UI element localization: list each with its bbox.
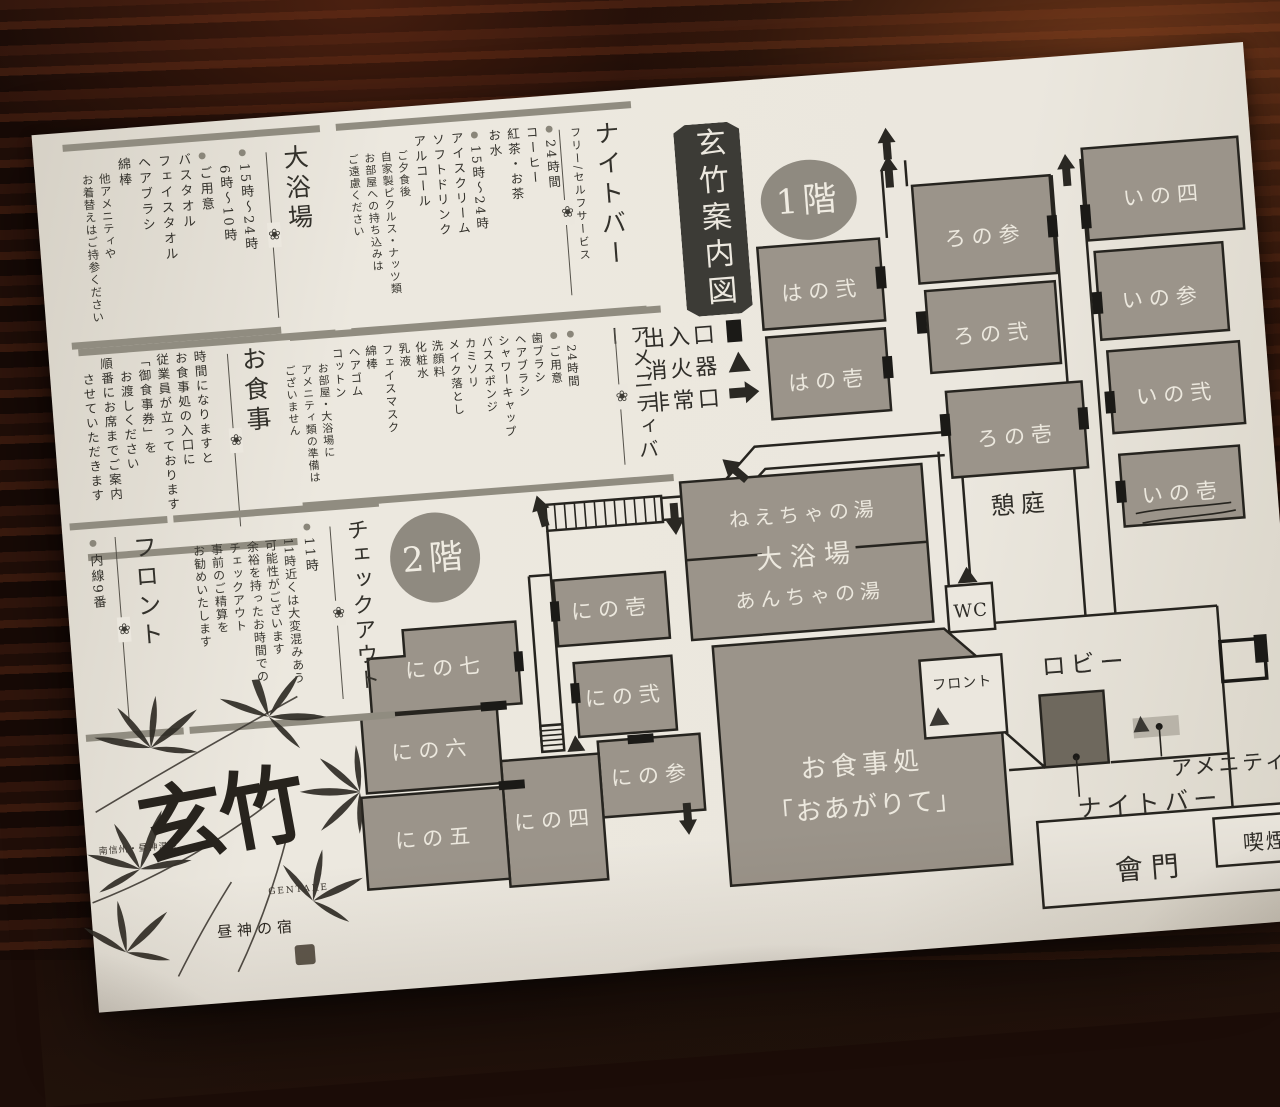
room-i4: いの四 [1082,137,1245,241]
gate-box: 會門 喫煙所 [1037,796,1280,908]
stairs-small [540,724,564,752]
svg-text:1階: 1階 [775,178,844,223]
room-ha2: はの弐 [757,239,885,330]
bath-block: ねえちゃの湯 大浴場 あんちゃの湯 [680,464,933,640]
stairs [545,496,663,531]
room-ro1: ろの壱 [946,381,1088,477]
wc-box: WC [944,565,995,632]
seal-stamp [294,944,315,965]
room-ni4: にの四 [501,754,608,887]
room-ha1: はの壱 [766,328,891,419]
svg-text:2階: 2階 [401,536,470,581]
room-i2: いの弐 [1107,341,1245,433]
room-ni1: にの壱 [553,572,670,646]
exit-arrow-icon [729,380,761,404]
entrance-icon [1220,634,1270,681]
entrance-door-icon [726,319,743,342]
svg-text:喫煙所: 喫煙所 [1242,826,1280,855]
room-i1: いの壱 [1119,446,1244,527]
knot-icon: ❀ [560,199,574,225]
room-i3: いの参 [1095,242,1229,340]
guide-paper: はの弐 はの壱 ろの参 ろの弐 ろの壱 いの四 [32,42,1280,1013]
night-bar-evening: ●15時〜24時 アイスクリーム ソフトドリンク アルコール [408,130,496,313]
room-ni2: にの弐 [574,656,677,737]
svg-text:會門: 會門 [1114,849,1188,887]
room-ro2: ろの弐 [925,281,1061,373]
front-desk-box: フロント [919,654,1007,738]
knot-icon: ❀ [267,222,281,248]
page-title: 玄竹案内図 [684,125,742,313]
info-box-night-bar: ❀ ナイトバー フリー/セルフサービス ●24時間 コーヒー 紅茶・お茶 お水 … [336,101,647,335]
floor2-badge: 2階 [387,509,484,606]
amenity-bar-marker: アメニティバー [1132,701,1280,783]
knot-icon: ❀ [615,384,629,410]
info-box-amenity-bar: ❀ アメニティバー ●24時間 ●ご用意 歯ブラシ ヘアブラシ シャワーキャップ… [290,305,674,509]
night-bar-24h: ●24時間 コーヒー 紅茶・お茶 お水 [483,124,571,307]
garden-label: 憩庭 [990,488,1052,521]
svg-text:WC: WC [953,599,989,623]
amenity-items: ●ご用意 歯ブラシ ヘアブラシ シャワーキャップ バススポンジ カミソリ メイク… [329,330,573,489]
ryokan-logo: 南信州・昼神温泉 玄竹 GENTAKE 昼神の宿 [67,670,409,994]
floor1-badge: 1階 [758,156,860,243]
info-box-bath: ❀ 大浴場 ●15時〜24時 6時〜10時 ●ご用意 バスタオル フェイスタオル… [62,125,336,356]
knot-icon: ❀ [332,600,346,626]
room-ro3: ろの参 [912,175,1057,283]
knot-icon: ❀ [229,427,243,453]
knot-icon: ❀ [117,616,131,642]
bath-amenities: ●ご用意 バスタオル フェイスタオル ヘアブラシ 綿棒 [111,150,225,335]
lobby-label: ロビー [1041,647,1130,682]
svg-text:アメニティバー: アメニティバー [1171,744,1280,781]
extinguisher-triangle-icon [727,351,750,373]
